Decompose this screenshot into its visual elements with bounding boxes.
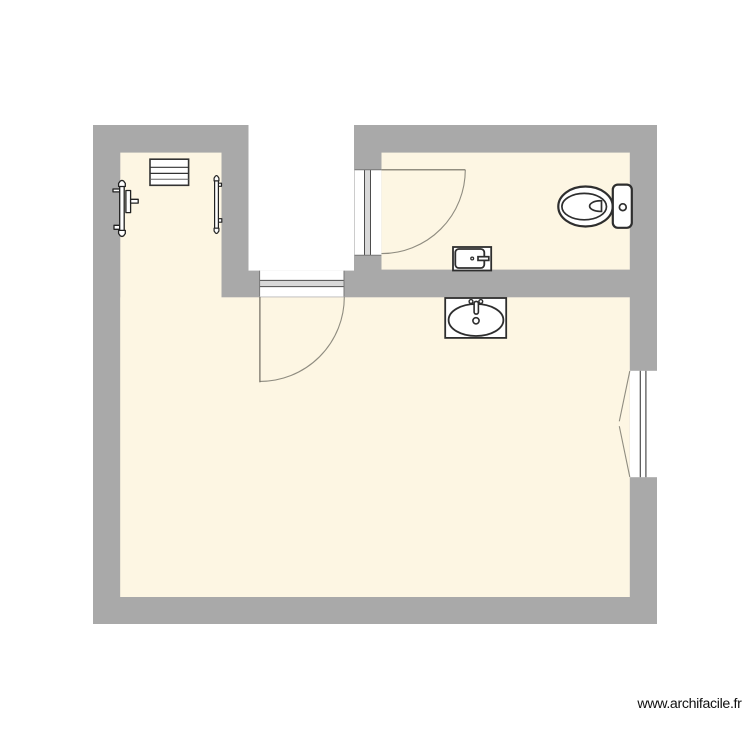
svg-text:www.archifacile.fr: www.archifacile.fr <box>636 696 742 712</box>
